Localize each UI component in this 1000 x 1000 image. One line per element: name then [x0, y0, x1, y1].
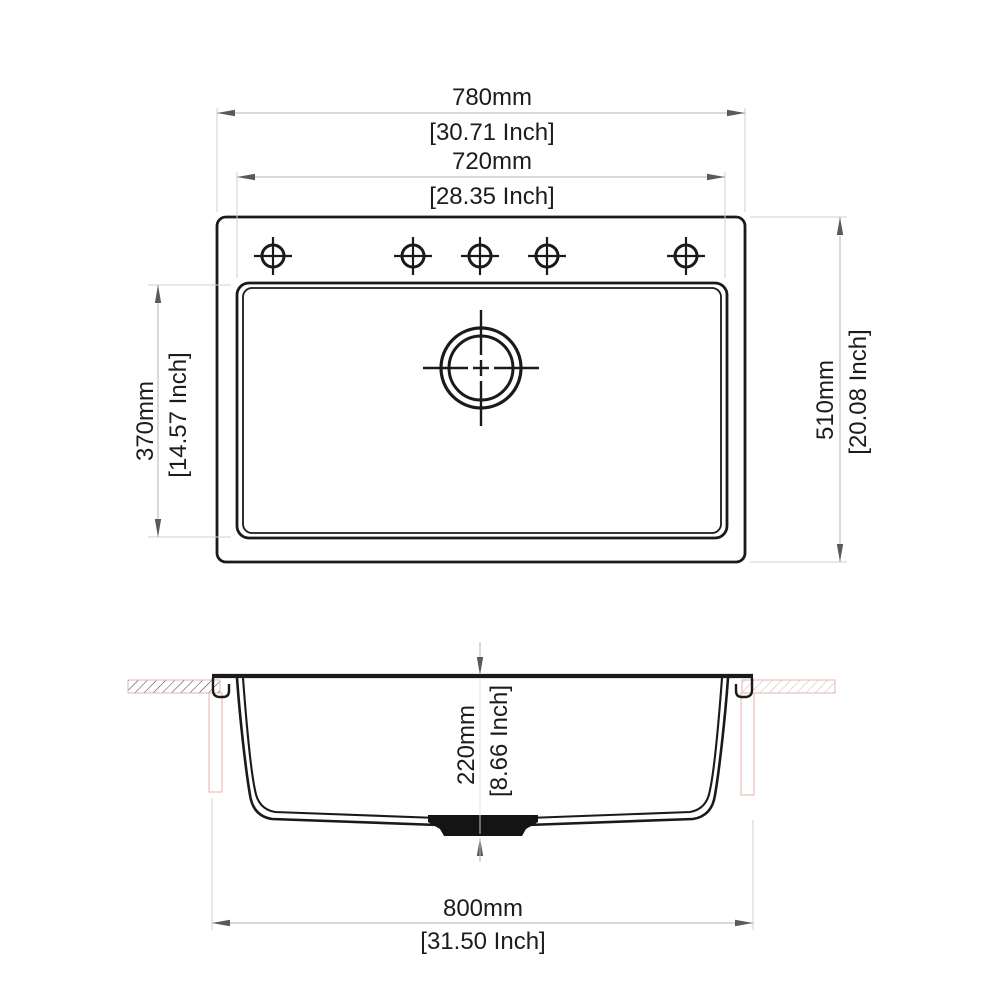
dim-label-mm: 780mm — [452, 84, 532, 111]
countertop-cut-left — [128, 680, 220, 693]
top-view — [217, 217, 745, 562]
dim-label-mm: 220mm — [453, 705, 480, 785]
sink-technical-drawing: 780mm [30.71 Inch] 720mm [28.35 Inch] 37… — [0, 0, 1000, 1000]
drain-boss — [428, 815, 538, 836]
dim-label-inch: [31.50 Inch] — [420, 928, 545, 955]
dim-label-inch: [30.71 Inch] — [429, 119, 554, 146]
dim-label-mm: 510mm — [812, 360, 839, 440]
dim-label-mm: 800mm — [443, 895, 523, 922]
countertop-cut-right — [742, 680, 835, 693]
dim-label-inch: [20.08 Inch] — [845, 329, 872, 454]
dim-label-inch: [8.66 Inch] — [486, 685, 513, 797]
dim-label-mm: 370mm — [132, 381, 159, 461]
dim-label-mm: 720mm — [452, 148, 532, 175]
dim-label-inch: [14.57 Inch] — [165, 352, 192, 477]
dim-label-inch: [28.35 Inch] — [429, 183, 554, 210]
